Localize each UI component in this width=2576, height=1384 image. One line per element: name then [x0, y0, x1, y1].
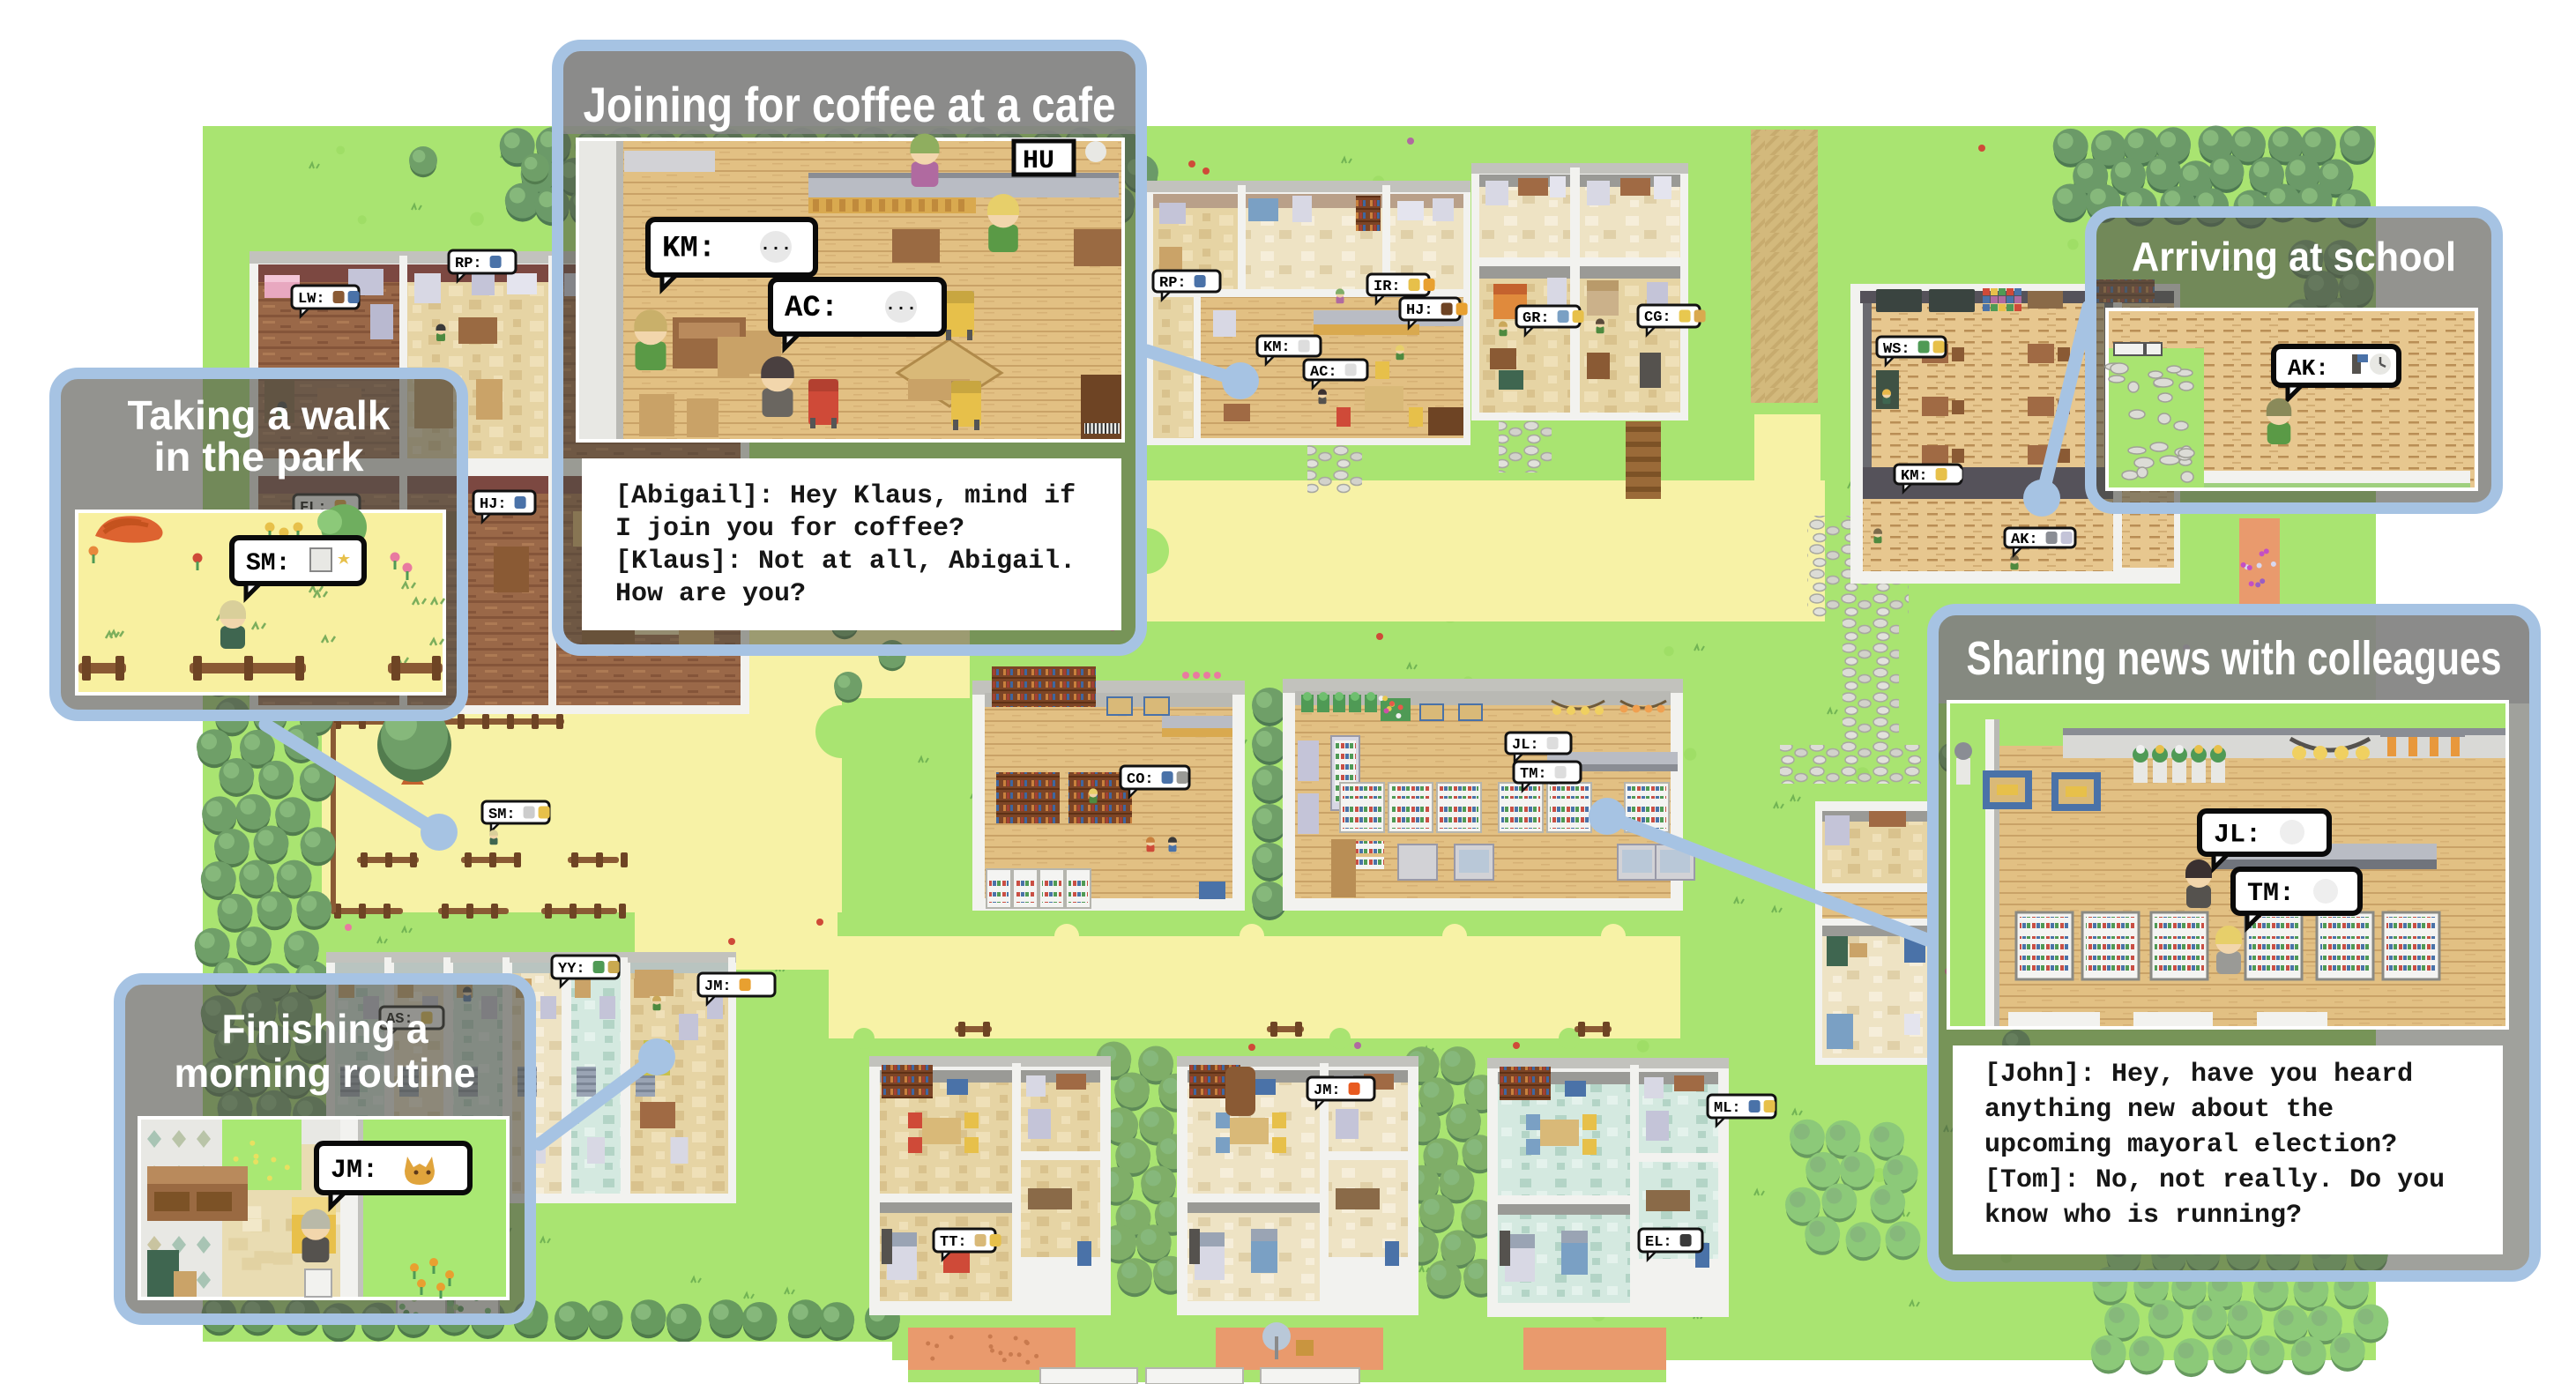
svg-text:upcoming mayoral election?: upcoming mayoral election?: [1984, 1130, 2397, 1160]
svg-text:KM:: KM:: [662, 233, 716, 266]
svg-text:AK:: AK:: [2011, 532, 2038, 548]
svg-text:AC:: AC:: [785, 292, 838, 325]
svg-text:[John]: Hey, have you heard: [John]: Hey, have you heard: [1984, 1060, 2413, 1090]
svg-text:HJ:: HJ:: [480, 496, 507, 513]
svg-text:JM:: JM:: [1314, 1083, 1341, 1099]
svg-text:CO:: CO:: [1127, 771, 1154, 788]
svg-text:Taking a walk: Taking a walk: [128, 392, 391, 438]
svg-text:KM:: KM:: [1901, 468, 1928, 485]
svg-text:HJ:: HJ:: [1406, 302, 1433, 319]
svg-text:SM:: SM:: [246, 550, 290, 577]
svg-text:I join you for coffee?: I join you for coffee?: [615, 514, 964, 544]
svg-text:know who is running?: know who is running?: [1984, 1201, 2302, 1231]
svg-text:morning routine: morning routine: [175, 1050, 476, 1096]
svg-text:[Abigail]: Hey Klaus, mind if: [Abigail]: Hey Klaus, mind if: [615, 481, 1076, 511]
svg-text:JM:: JM:: [704, 978, 732, 995]
svg-text:JL:: JL:: [2214, 821, 2261, 851]
svg-text:TT:: TT:: [940, 1234, 967, 1251]
svg-text:···: ···: [885, 299, 917, 319]
svg-text:AC:: AC:: [1310, 364, 1337, 381]
svg-text:How are you?: How are you?: [615, 579, 806, 609]
svg-text:ML:: ML:: [1714, 1100, 1741, 1117]
svg-text:IR:: IR:: [1374, 279, 1401, 295]
svg-text:in the park: in the park: [154, 434, 364, 480]
svg-text:JL:: JL:: [1512, 737, 1539, 754]
svg-text:GR:: GR:: [1523, 310, 1550, 327]
svg-text:JM:: JM:: [331, 1156, 378, 1186]
svg-text:anything new about the: anything new about the: [1984, 1095, 2334, 1125]
svg-text:Finishing a: Finishing a: [222, 1006, 428, 1052]
svg-text:[Klaus]: Not at all, Abigail.: [Klaus]: Not at all, Abigail.: [615, 547, 1076, 577]
svg-text:···: ···: [760, 239, 792, 259]
svg-text:TM:: TM:: [2247, 879, 2295, 909]
svg-text:Sharing news with colleagues: Sharing news with colleagues: [1967, 632, 2502, 685]
svg-text:AK:: AK:: [2288, 355, 2329, 382]
svg-text:CG:: CG:: [1644, 309, 1671, 326]
svg-text:SM:: SM:: [488, 807, 516, 823]
svg-text:TM:: TM:: [1520, 766, 1547, 783]
svg-text:LW:: LW:: [298, 291, 325, 308]
svg-text:HU: HU: [1023, 146, 1054, 176]
svg-text:YY:: YY:: [558, 961, 585, 978]
svg-text:Arriving at school: Arriving at school: [2132, 234, 2456, 279]
svg-text:Joining for coffee at a cafe: Joining for coffee at a cafe: [584, 77, 1116, 132]
svg-text:[Tom]: No, not really. Do you: [Tom]: No, not really. Do you: [1984, 1165, 2445, 1195]
svg-text:RP:: RP:: [1159, 275, 1187, 292]
svg-text:KM:: KM:: [1263, 339, 1291, 356]
svg-text:RP:: RP:: [455, 256, 482, 272]
svg-text:EL:: EL:: [1645, 1234, 1672, 1251]
svg-text:WS:: WS:: [1883, 341, 1910, 358]
